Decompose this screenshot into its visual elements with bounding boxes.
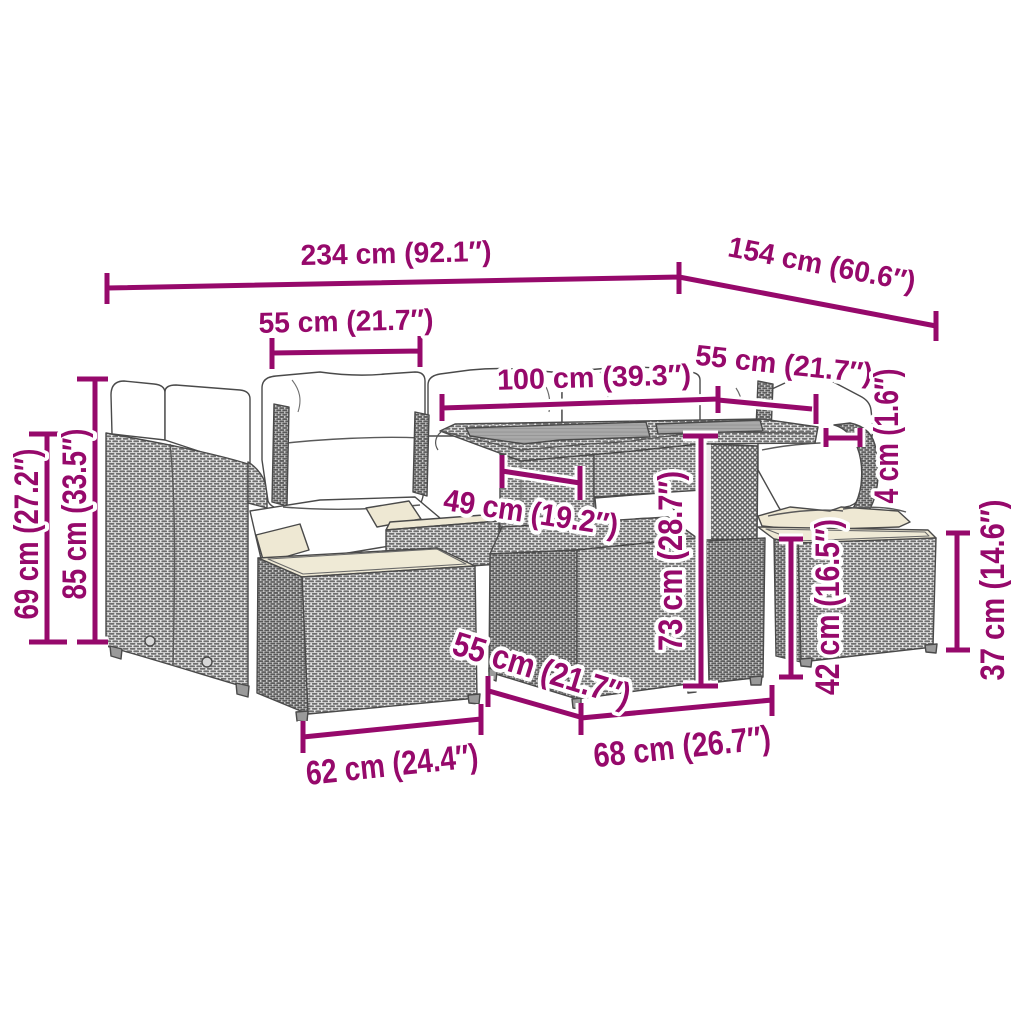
svg-text:42 cm (16.5″): 42 cm (16.5″) (809, 519, 847, 695)
svg-text:234 cm (92.1″): 234 cm (92.1″) (300, 236, 492, 272)
svg-text:55 cm (21.7″): 55 cm (21.7″) (258, 304, 434, 340)
svg-text:73 cm (28.7″): 73 cm (28.7″) (652, 471, 690, 651)
svg-text:100 cm (39.3″): 100 cm (39.3″) (497, 359, 692, 396)
svg-text:69 cm (27.2″): 69 cm (27.2″) (8, 449, 46, 620)
svg-text:37 cm (14.6″): 37 cm (14.6″) (974, 500, 1012, 681)
svg-text:85 cm (33.5″): 85 cm (33.5″) (56, 429, 94, 600)
svg-text:4 cm (1.6″): 4 cm (1.6″) (868, 369, 906, 504)
